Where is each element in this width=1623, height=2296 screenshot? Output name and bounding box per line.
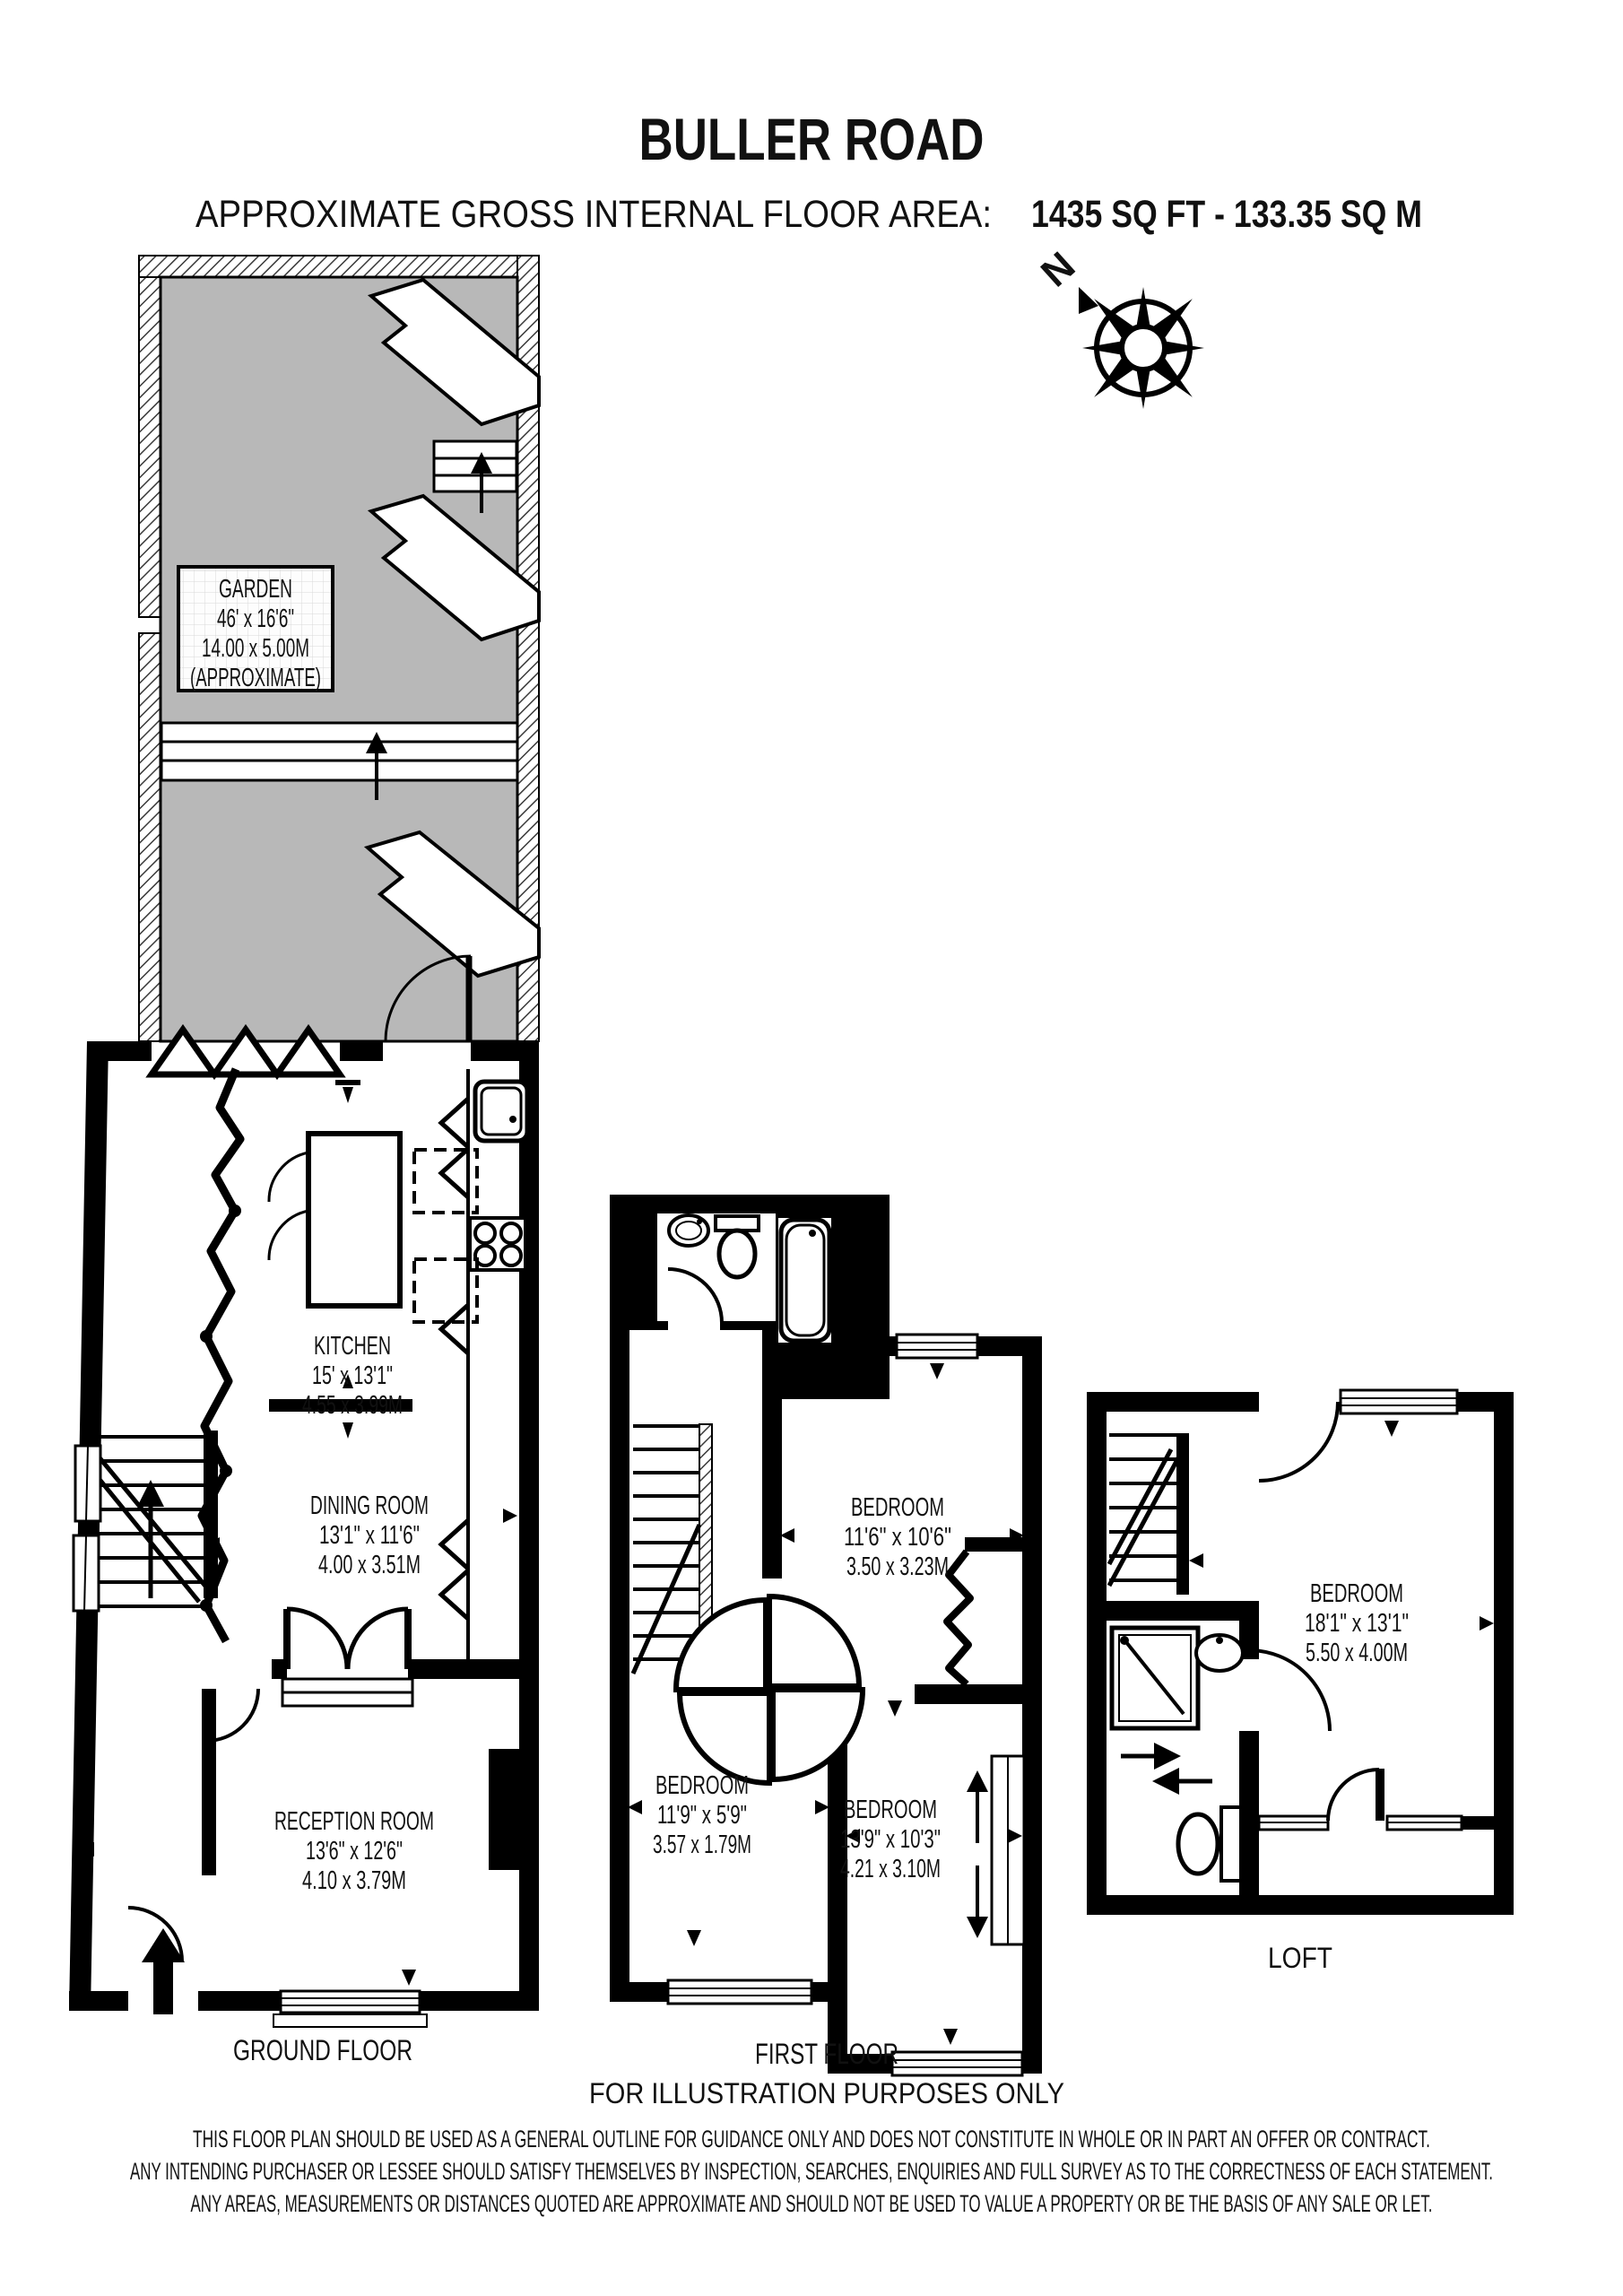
garden-name: GARDEN [219,575,292,604]
garden-hatch-left [139,633,161,1041]
garden-label-box: GARDEN 46' x 16'6" 14.00 x 5.00M (APPROX… [178,567,333,692]
bedroom-top-size-imperial: 11'6" x 10'6" [844,1523,951,1552]
bay-window [273,1991,427,2027]
bedroom-top-size-metric: 3.50 x 3.23M [846,1552,949,1581]
garden-size-imperial: 46' x 16'6" [217,604,294,633]
window [1341,1390,1457,1413]
disclaimer: THIS FLOOR PLAN SHOULD BE USED AS A GENE… [130,2126,1493,2217]
disclaimer-line-2: ANY INTENDING PURCHASER OR LESSEE SHOULD… [130,2158,1493,2185]
basin-icon [669,1215,708,1246]
loft-plan: BEDROOM 18'1" x 13'1" 5.50 x 4.00M LOFT [1087,1390,1514,1974]
dining-room-size-metric: 4.00 x 3.51M [318,1551,421,1579]
double-door-swing [282,1609,412,1706]
first-floor-label: FIRST FLOOR [755,2038,898,2070]
bedroom-right-name: BEDROOM [844,1796,937,1824]
kitchen-size-metric: 4.55 x 3.99M [302,1391,403,1420]
loft-bedroom-size-imperial: 18'1" x 13'1" [1305,1609,1409,1638]
dining-room-size-imperial: 13'1" x 11'6" [319,1521,420,1550]
ground-floor-plan: KITCHEN 15' x 13'1" 4.55 x 3.99M DINING … [69,1030,539,2066]
reception-room-name: RECEPTION ROOM [274,1807,434,1836]
header: BULLER ROAD APPROXIMATE GROSS INTERNAL F… [195,106,1422,236]
garden-hatch-right [517,405,539,592]
kitchen-name: KITCHEN [314,1332,391,1361]
garden-size-metric: 14.00 x 5.00M [202,634,309,663]
reception-room-size-metric: 4.10 x 3.79M [302,1866,406,1895]
garden: GARDEN 46' x 16'6" 14.00 x 5.00M (APPROX… [139,256,539,1041]
floor-plan-canvas: BULLER ROAD APPROXIMATE GROSS INTERNAL F… [0,0,1623,2296]
bathroom-door-gap [668,1315,720,1335]
toilet-icon [1178,1807,1241,1881]
loft-bedroom-name: BEDROOM [1310,1579,1403,1608]
bedroom-top-name: BEDROOM [851,1493,944,1522]
toilet-icon [716,1216,759,1277]
ground-floor-label: GROUND FLOOR [233,2034,412,2066]
garden-hatch-top [139,256,539,277]
area-label: APPROXIMATE GROSS INTERNAL FLOOR AREA: [195,193,992,236]
bedroom-right-size-metric: 4.21 x 3.10M [840,1855,941,1883]
area-value: 1435 SQ FT - 133.35 SQ M [1031,193,1422,236]
eaves-access-arrows [1121,1756,1212,1781]
garden-hatch-right [517,621,539,928]
garden-hatch-left [139,256,161,617]
bedroom-left-size-imperial: 11'9" x 5'9" [657,1801,747,1830]
compass-rose: N [1033,244,1242,447]
page-title: BULLER ROAD [639,106,985,172]
shower-icon [1112,1628,1198,1728]
disclaimer-line-1: THIS FLOOR PLAN SHOULD BE USED AS A GENE… [193,2126,1430,2152]
bathtub-icon [781,1220,829,1341]
basin-icon [1196,1635,1243,1671]
cupboard-door-marks [441,1099,468,1619]
staircase-ground [90,1437,208,1606]
bifold-wall-zigzag [152,1030,340,1074]
disclaimer-line-3: ANY AREAS, MEASUREMENTS OR DISTANCES QUO… [191,2190,1433,2217]
wardrobe-zigzag-wall [947,1552,970,1684]
first-floor-note: FOR ILLUSTRATION PURPOSES ONLY [589,2077,1064,2109]
knee-wall [1259,1816,1462,1830]
kitchen-size-imperial: 15' x 13'1" [312,1361,393,1390]
landing-notch [629,1330,762,1399]
kitchen-sink-icon [475,1082,527,1141]
reception-room-size-imperial: 13'6" x 12'6" [306,1837,403,1865]
garden-hatch-right [517,256,539,377]
garden-hatch-right [517,957,539,1041]
compass-hub [1122,326,1165,370]
bedroom-left-size-metric: 3.57 x 1.79M [653,1831,751,1859]
loft-door-swing [1259,1402,1338,1481]
loft-bedroom-size-metric: 5.50 x 4.00M [1306,1639,1408,1667]
bedroom-left-name: BEDROOM [655,1771,749,1800]
first-floor-plan: BEDROOM 11'6" x 10'6" 3.50 x 3.23M BEDRO… [589,1195,1064,2109]
dining-room-name: DINING ROOM [310,1492,429,1520]
island-cupboard-arcs [269,1152,308,1260]
loft-label: LOFT [1268,1942,1332,1974]
compass-north: N [1033,244,1083,296]
garden-note: (APPROXIMATE) [190,664,321,692]
eaves-door-swing [1328,1770,1379,1821]
bedroom-right-size-imperial: 13'9" x 10'3" [840,1825,941,1854]
staircase-loft [1109,1435,1180,1586]
kitchen-island [308,1134,400,1306]
